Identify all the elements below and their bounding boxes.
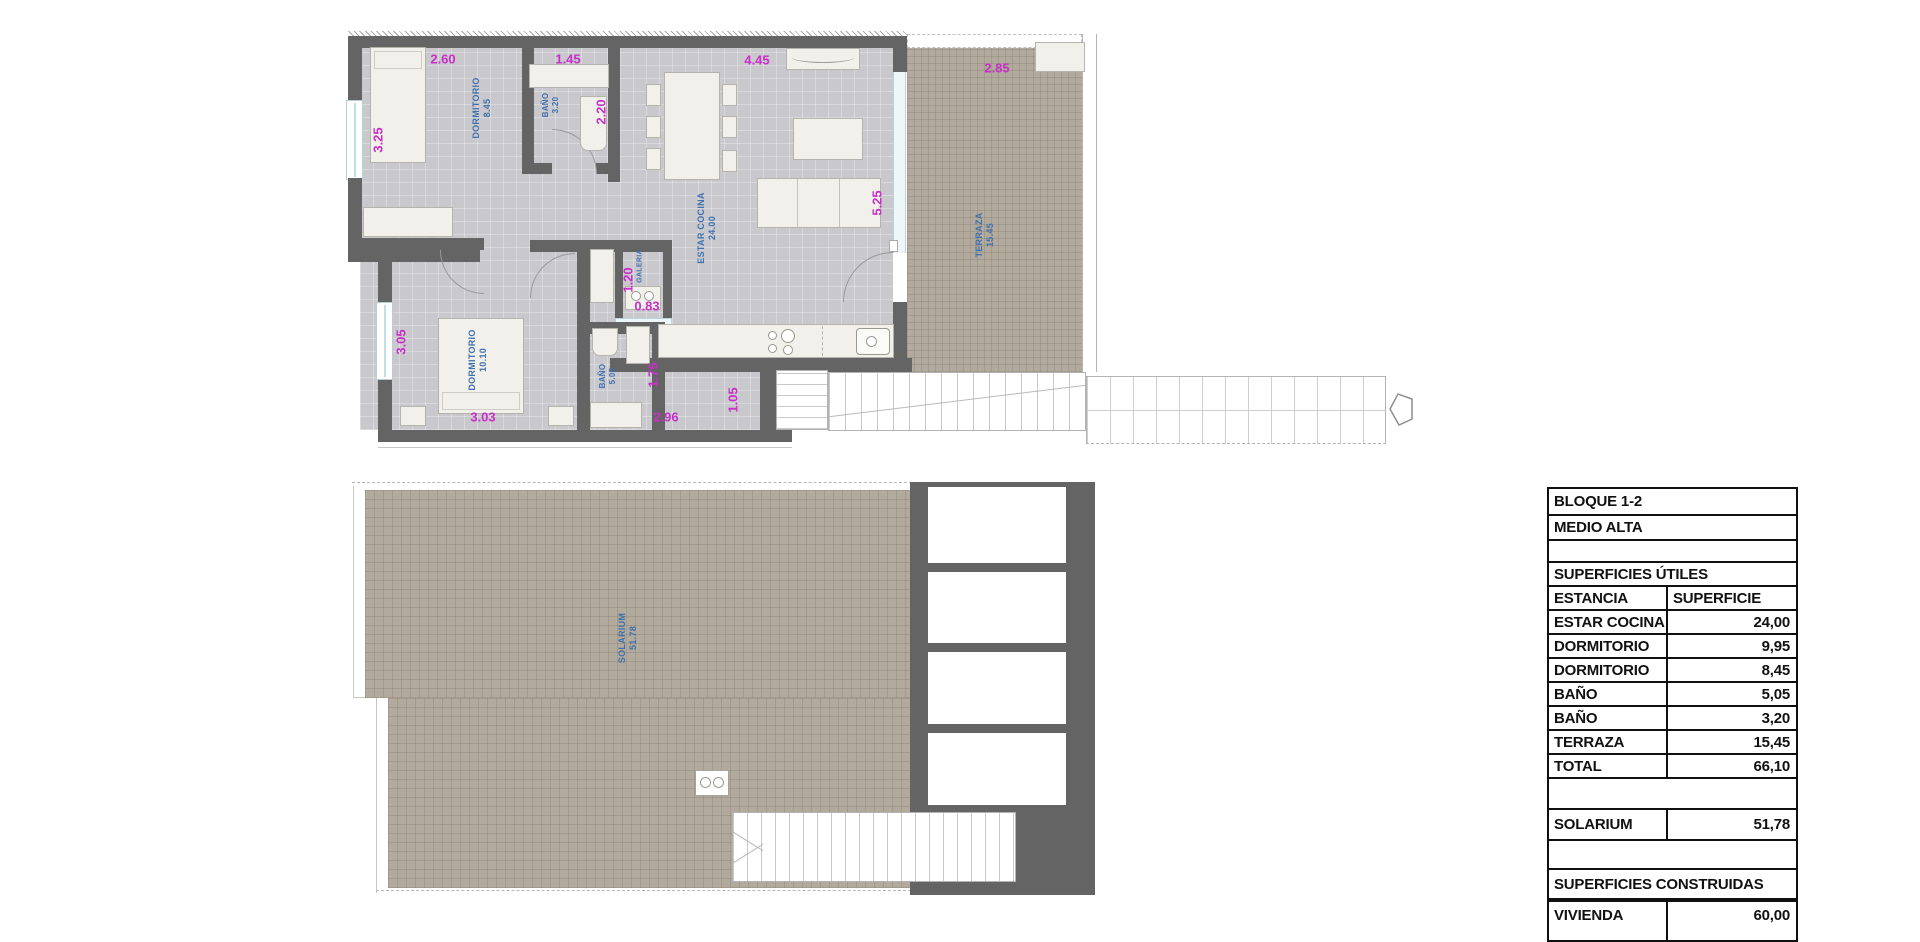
dining-chair: [646, 116, 661, 138]
wall-bottom: [378, 430, 792, 442]
floorplan-sheet: { "plan_upper": { "rooms": { "dormitorio…: [0, 0, 1920, 920]
stair-arrow-tail: [732, 829, 763, 851]
toilet-bano2: [592, 328, 618, 356]
dining-chair: [646, 84, 661, 106]
core-opening: [928, 572, 1066, 643]
room-area: 10.10: [478, 348, 488, 372]
stair-direction-line: [828, 384, 1086, 418]
sofa-divider: [797, 179, 798, 227]
level-title: MEDIO ALTA: [1549, 516, 1796, 539]
wall-galeria-right: [663, 247, 672, 320]
sofa: [757, 178, 881, 228]
wardrobe-dormitorio1: [363, 207, 453, 237]
sink-counter-bano1: [529, 64, 609, 88]
room-label-bano1: BAÑO 3.20: [541, 93, 561, 118]
row-room: SOLARIUM: [1549, 810, 1668, 839]
terraza-planter: [1035, 42, 1085, 72]
row-room: ESTAR COCINA: [1549, 611, 1668, 633]
row-area: 15,45: [1668, 734, 1796, 751]
room-label-terraza: TERRAZA 15.45: [974, 212, 997, 257]
sofa-divider: [839, 179, 840, 227]
kitchen-counter-divider: [822, 326, 823, 356]
wall-bano1-right: [608, 48, 620, 182]
sink-drain: [866, 336, 877, 347]
tv-curve: [792, 52, 854, 63]
pillow-dormitorio2: [442, 392, 520, 410]
hob-burner: [783, 345, 793, 355]
solarium-outline-left-lower: [376, 697, 377, 893]
dim-terraza-width: 2.85: [984, 61, 1009, 76]
dim-dorm2-depth: 3.05: [394, 329, 409, 354]
dim-entry-width: 1.05: [726, 387, 741, 412]
solarium-outline-bottom: [376, 890, 916, 891]
dining-chair: [722, 116, 737, 138]
column-header-area: SUPERFICIE: [1668, 590, 1796, 607]
solarium-outline-left-upper: [353, 486, 354, 698]
glazing-handle: [889, 240, 898, 252]
stair-run: [828, 372, 1086, 431]
wall-bano1-bottom-b: [596, 163, 620, 174]
table-row-empty: [1549, 539, 1796, 561]
table-row: ESTAR COCINA 24,00: [1549, 609, 1796, 633]
wall-left-upper-a: [348, 36, 362, 102]
dim-dorm1-depth: 3.25: [371, 127, 386, 152]
walkway-direction-arrow-icon: [1388, 392, 1414, 428]
room-name: ESTAR COCINA: [696, 192, 706, 263]
bathtub-bano2: [590, 402, 642, 428]
block-title: BLOQUE 1-2: [1549, 489, 1796, 514]
room-label-bano2: BAÑO 5.05: [598, 364, 618, 389]
room-area: 24.00: [707, 216, 717, 240]
table-row-vivienda: VIVIENDA 60,00: [1549, 900, 1796, 940]
access-walkway: [1086, 376, 1386, 444]
wall-right-bottom: [893, 302, 907, 360]
room-name: BAÑO: [598, 364, 607, 389]
room-label-galeria: GALERIA: [637, 249, 646, 283]
nightstand: [400, 406, 426, 426]
row-area: 51,78: [1668, 816, 1796, 833]
column-header-room: ESTANCIA: [1549, 587, 1668, 609]
row-area: 8,45: [1668, 662, 1796, 679]
outline-bottom: [378, 447, 792, 448]
row-area: 24,00: [1668, 614, 1796, 631]
table-row: BAÑO 3,20: [1549, 705, 1796, 729]
row-room: TERRAZA: [1549, 731, 1668, 753]
dim-bano1-depth: 2.20: [594, 99, 609, 124]
room-area: 8.45: [482, 99, 492, 118]
room-name: TERRAZA: [974, 212, 984, 257]
row-room: BAÑO: [1549, 707, 1668, 729]
table-row-empty: [1549, 839, 1796, 868]
room-name: GALERIA: [637, 249, 644, 283]
wall-bano1-bottom-a: [522, 163, 552, 174]
dim-bano1-width: 1.45: [555, 52, 580, 67]
solarium-outline-top: [352, 482, 942, 483]
table-row-empty: [1549, 777, 1796, 808]
window-dormitorio1: [346, 100, 363, 180]
room-area: 5.05: [608, 368, 617, 385]
core-opening: [928, 487, 1066, 563]
hob-burner: [768, 331, 777, 340]
room-name: DORMITORIO: [467, 329, 477, 390]
hob-burner: [768, 344, 777, 353]
row-area: 66,10: [1668, 758, 1796, 775]
dim-estar-depth: 5.25: [870, 190, 885, 215]
table-row-solarium: SOLARIUM 51,78: [1549, 808, 1796, 839]
wall-right-top: [893, 48, 907, 72]
room-label-dormitorio2: DORMITORIO 10.10: [467, 329, 490, 390]
table-row-built-title: SUPERFICIES CONSTRUIDAS: [1549, 868, 1796, 900]
room-area: 15.45: [985, 223, 995, 247]
table-row: DORMITORIO 8,45: [1549, 657, 1796, 681]
upper-floor-plan: 2.60 1.45 4.45 2.85 3.25 2.20 5.25 1.20 …: [0, 0, 1920, 470]
row-area: 3,20: [1668, 710, 1796, 727]
dining-chair: [722, 150, 737, 172]
row-room: DORMITORIO: [1549, 635, 1668, 657]
table-row: DORMITORIO 9,95: [1549, 633, 1796, 657]
solarium-stair: [732, 812, 1016, 882]
entry-steps: [776, 370, 828, 430]
dim-dorm2-width: 3.03: [470, 410, 495, 425]
sink-bano2: [626, 326, 650, 364]
dining-chair: [722, 84, 737, 106]
room-label-dormitorio1: DORMITORIO 8.45: [471, 77, 494, 138]
table-row-level: MEDIO ALTA: [1549, 514, 1796, 539]
room-label-estar-cocina: ESTAR COCINA 24.00: [696, 192, 719, 263]
window-dormitorio2: [376, 302, 393, 380]
hob-burner: [781, 329, 795, 343]
walkway-mid-line: [1087, 410, 1385, 411]
dining-table: [664, 72, 720, 180]
room-area: 3.20: [551, 97, 560, 114]
wall-top: [348, 36, 907, 48]
stair-arrow-tail: [732, 844, 763, 866]
row-room: VIVIENDA: [1549, 902, 1668, 940]
nightstand: [548, 406, 574, 426]
room-name: SOLARIUM: [617, 613, 627, 663]
dining-chair: [646, 148, 661, 170]
table-row-total: TOTAL 66,10: [1549, 753, 1796, 777]
useful-surfaces-title: SUPERFICIES ÚTILES: [1549, 563, 1796, 585]
wall-dorm2-bano2: [577, 252, 590, 430]
core-opening: [928, 652, 1066, 724]
coffee-table: [793, 118, 863, 160]
table-header-row: ESTANCIA SUPERFICIE: [1549, 585, 1796, 609]
row-area: 9,95: [1668, 638, 1796, 655]
wall-dorm1-bottom: [362, 238, 484, 250]
room-name: DORMITORIO: [471, 77, 481, 138]
row-area: 5,05: [1668, 686, 1796, 703]
dim-estar-width: 4.45: [744, 53, 769, 68]
built-surfaces-title: SUPERFICIES CONSTRUIDAS: [1549, 870, 1796, 898]
dim-galeria-width: 0.83: [634, 299, 659, 314]
row-room: BAÑO: [1549, 683, 1668, 705]
core-opening: [928, 733, 1066, 805]
dim-dorm1-width: 2.60: [430, 52, 455, 67]
row-room: DORMITORIO: [1549, 659, 1668, 681]
row-room: TOTAL: [1549, 755, 1668, 777]
solarium-deck-upper: [365, 490, 910, 698]
table-row-useful-title: SUPERFICIES ÚTILES: [1549, 561, 1796, 585]
dim-bano2-width: 2.96: [653, 410, 678, 425]
skylight-dome-icon: [700, 777, 711, 788]
room-name: BAÑO: [541, 93, 550, 118]
skylight-dome-icon: [713, 777, 724, 788]
wall-left-upper-b: [348, 178, 362, 252]
table-row: BAÑO 5,05: [1549, 681, 1796, 705]
dim-bano2-depth: 1.75: [646, 362, 661, 387]
room-label-solarium: SOLARIUM 51.78: [617, 613, 640, 663]
table-row: TERRAZA 15,45: [1549, 729, 1796, 753]
pillow-dormitorio1: [374, 51, 422, 69]
terraza-balustrade: [1082, 34, 1097, 372]
dim-galeria-depth: 1.20: [621, 267, 636, 292]
row-area: 60,00: [1668, 902, 1796, 924]
wall-entry: [760, 368, 776, 430]
hall-cabinet: [590, 249, 614, 303]
glazing-estar-terraza: [893, 72, 906, 253]
terraza-floor: [907, 48, 1082, 372]
table-row-block: BLOQUE 1-2: [1549, 489, 1796, 514]
room-area: 51.78: [628, 626, 638, 650]
surfaces-table: BLOQUE 1-2 MEDIO ALTA SUPERFICIES ÚTILES…: [1547, 487, 1798, 942]
